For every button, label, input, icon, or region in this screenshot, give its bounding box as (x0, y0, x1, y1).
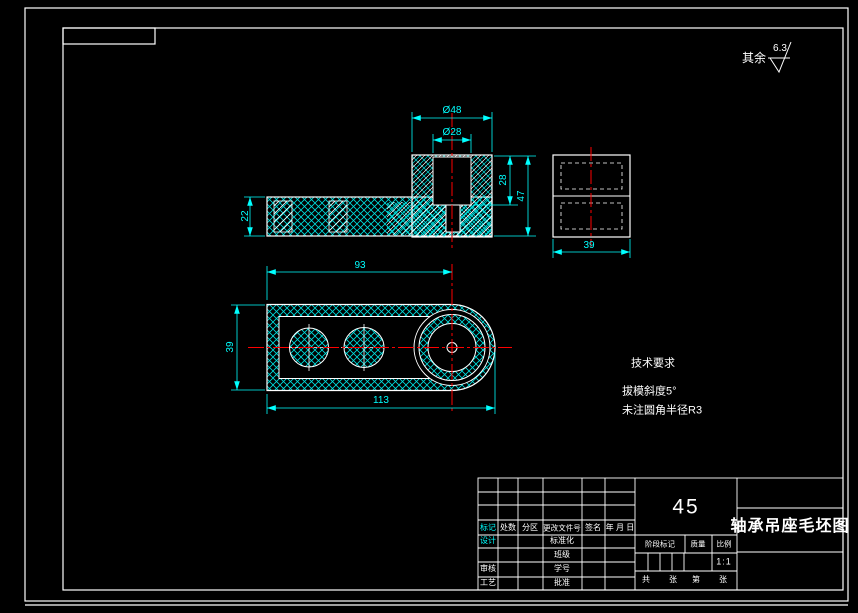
tb-sheets-sheet2: 张 (719, 576, 727, 584)
tb-stage-weight: 质量 (691, 540, 706, 548)
dim-side-width: 39 (583, 241, 594, 251)
tb-role-process: 工艺 (480, 579, 496, 587)
tb-header-mark: 标记 (480, 524, 496, 532)
plan-view (231, 264, 512, 414)
tb-field-student-no: 学号 (554, 565, 570, 573)
tb-stage-mark: 阶段标记 (645, 540, 675, 548)
tb-header-date: 年 月 日 (606, 524, 634, 532)
tb-header-change-doc: 更改文件号 (543, 524, 581, 532)
tb-scale-value: 1:1 (716, 558, 732, 567)
tech-requirement-item: 未注圆角半径R3 (622, 406, 702, 417)
roughness-value: 6.3 (773, 44, 787, 54)
dim-total-length: 113 (373, 396, 389, 406)
dim-boss-height: 47 (517, 190, 527, 201)
tb-material: 45 (672, 497, 699, 518)
tech-requirement-item: 拔模斜度5° (622, 387, 677, 398)
tb-field-approve: 批准 (554, 579, 570, 587)
dim-plan-width: 39 (226, 341, 236, 352)
tb-field-standardization: 标准化 (550, 537, 574, 545)
corner-box (63, 28, 155, 44)
tb-role-audit: 审核 (480, 565, 496, 573)
dim-hole-depth: 28 (499, 174, 509, 185)
tb-field-class: 班级 (554, 551, 570, 559)
tb-header-zone: 分区 (522, 524, 538, 532)
tb-role-design: 设计 (480, 537, 496, 545)
drawing-canvas (0, 0, 858, 613)
tb-header-signature: 签名 (585, 524, 601, 532)
tb-drawing-name: 轴承吊座毛坯图 (730, 519, 849, 535)
tb-header-count: 处数 (500, 524, 516, 532)
dim-center-distance: 93 (354, 261, 365, 271)
tb-scale-label: 比例 (717, 540, 732, 548)
roughness-label: 其余 (742, 52, 766, 64)
front-section-view (244, 112, 536, 250)
tb-sheets-sheet: 张 (669, 576, 677, 584)
tech-requirements-title: 技术要求 (631, 359, 675, 370)
dim-dia-inner: Ø28 (443, 128, 462, 138)
dim-flange-height: 22 (241, 210, 251, 221)
dim-dia-outer: Ø48 (443, 106, 462, 116)
tb-sheets-page: 第 (692, 576, 700, 584)
cad-drawing-sheet: 其余 6.3 Ø48 Ø28 22 28 47 39 93 113 39 技术要… (0, 0, 858, 613)
tb-sheets-total: 共 (642, 576, 650, 584)
